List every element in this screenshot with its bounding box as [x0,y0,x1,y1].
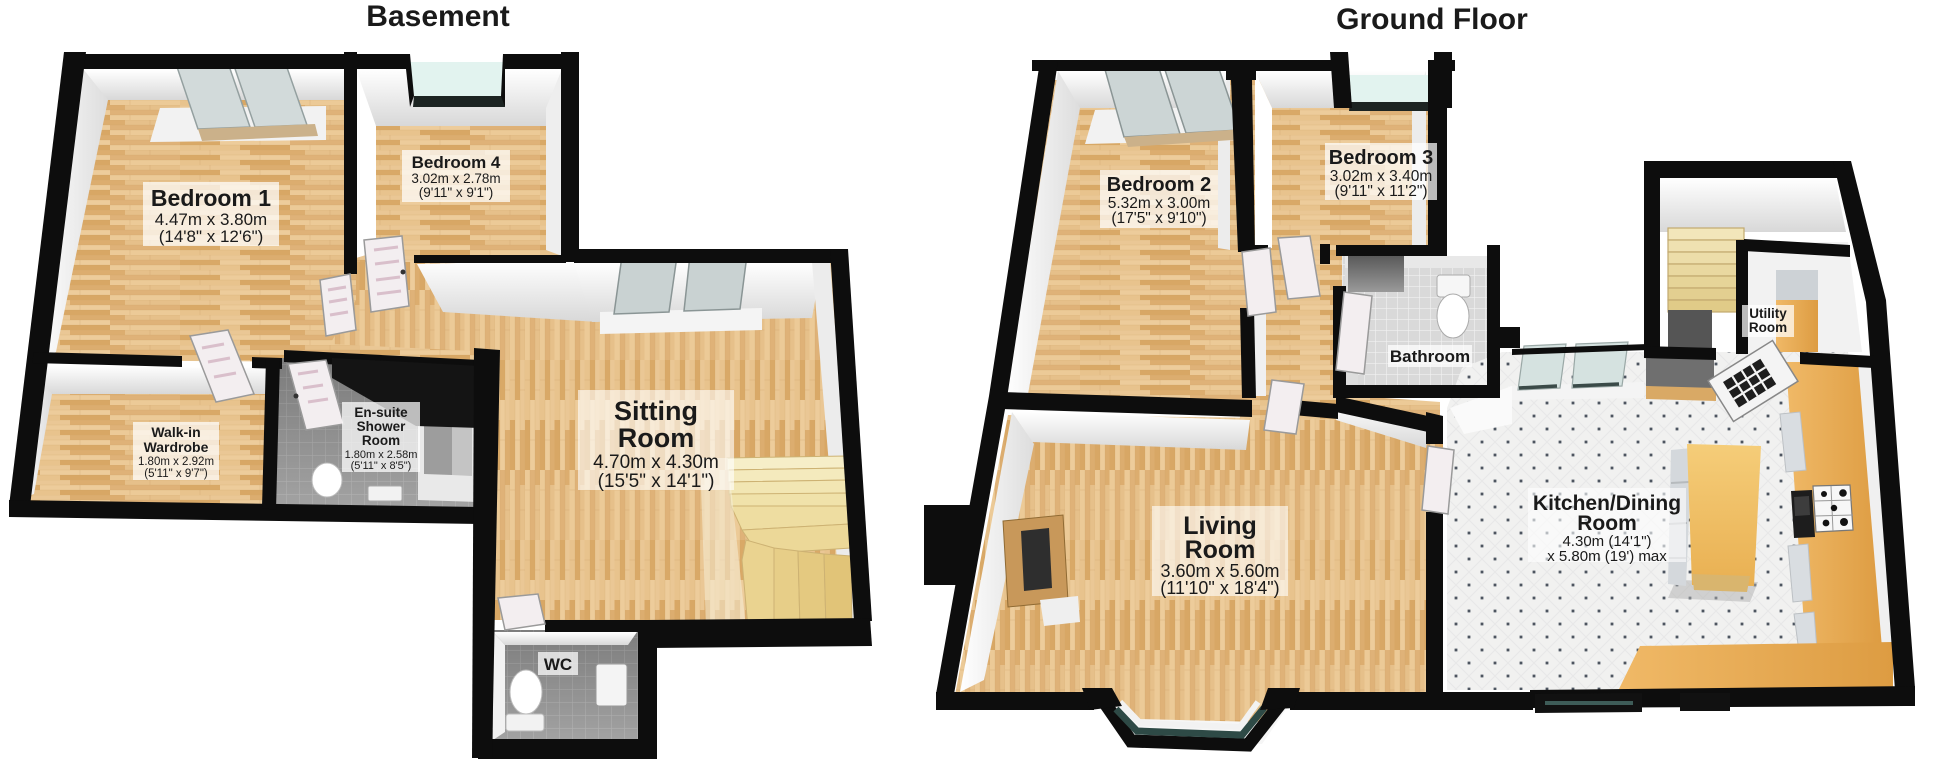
svg-text:Room: Room [1577,512,1637,535]
svg-text:(9'11" x 9'1"): (9'11" x 9'1") [419,185,494,200]
svg-text:Walk-in: Walk-in [151,424,200,440]
svg-text:Bedroom 3: Bedroom 3 [1329,147,1433,169]
svg-text:Basement: Basement [366,0,509,33]
svg-text:Room: Room [1185,536,1256,564]
svg-text:WC: WC [544,655,572,674]
svg-text:Sitting: Sitting [614,396,698,426]
svg-text:(17'5" x 9'10"): (17'5" x 9'10") [1111,210,1206,227]
svg-text:Utility: Utility [1749,306,1787,321]
svg-text:(5'11" x 8'5"): (5'11" x 8'5") [351,460,412,472]
svg-text:Room: Room [618,423,695,453]
svg-text:Room: Room [1749,320,1787,335]
svg-text:(14'8" x 12'6"): (14'8" x 12'6") [159,227,264,246]
svg-text:(15'5" x 14'1"): (15'5" x 14'1") [598,471,715,492]
svg-text:1.80m x 2.92m: 1.80m x 2.92m [138,456,214,468]
svg-text:Bedroom 1: Bedroom 1 [151,185,271,211]
svg-text:x 5.80m (19') max: x 5.80m (19') max [1547,548,1667,565]
svg-text:Bathroom: Bathroom [1390,347,1470,366]
svg-text:Wardrobe: Wardrobe [144,439,209,455]
svg-text:4.70m x 4.30m: 4.70m x 4.30m [593,452,719,473]
svg-text:Bedroom 2: Bedroom 2 [1107,174,1211,196]
svg-text:Ground Floor: Ground Floor [1336,3,1528,36]
svg-text:Room: Room [362,433,400,448]
svg-text:3.02m x 2.78m: 3.02m x 2.78m [411,171,500,186]
svg-text:En-suite: En-suite [354,405,408,420]
svg-text:Bedroom 4: Bedroom 4 [412,153,501,172]
svg-text:Shower: Shower [357,419,407,434]
svg-text:(11'10" x 18'4"): (11'10" x 18'4") [1160,578,1279,598]
svg-text:(5'11" x 9'7"): (5'11" x 9'7") [144,468,208,480]
svg-text:(9'11" x 11'2"): (9'11" x 11'2") [1334,183,1427,200]
